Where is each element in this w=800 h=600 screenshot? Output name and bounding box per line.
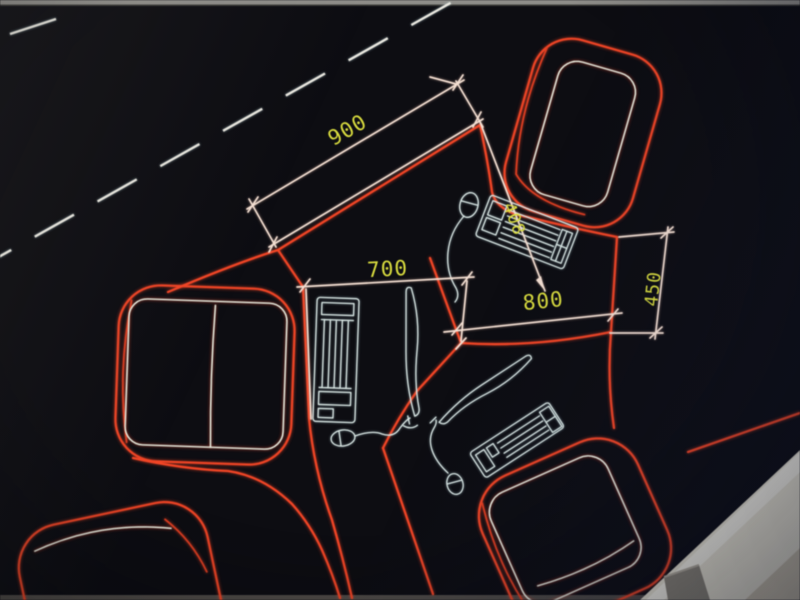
desk-cluster-outline xyxy=(133,125,800,598)
desk-edge-offscreen-right xyxy=(688,413,800,452)
mouse-left-buttons xyxy=(339,431,341,445)
mouse-left-desk xyxy=(330,428,356,447)
desk-center-right-divider xyxy=(461,332,611,344)
dimension-900-extensions xyxy=(249,77,483,247)
monitor-bottom-profile xyxy=(433,354,538,426)
dimension-800-line xyxy=(444,313,622,332)
chair-left xyxy=(114,284,296,466)
keyboard-left-block-a xyxy=(322,302,354,315)
dimension-900-line xyxy=(247,80,464,209)
desk-corner-left xyxy=(278,250,303,287)
monitor-left-desk xyxy=(401,287,423,428)
desk-left-front-edge xyxy=(303,287,352,598)
dimension-900-label: 900 xyxy=(324,109,371,150)
chair-bottom-left-shell-inner xyxy=(165,513,207,578)
mouse-right-buttons xyxy=(462,201,477,205)
chair-left-shell xyxy=(114,284,296,466)
dashed-centerline-main xyxy=(0,0,470,272)
chair-left-cushion xyxy=(125,298,288,449)
mouse-left-cable xyxy=(355,418,410,436)
keyboard-left-keys xyxy=(319,319,353,388)
desk-bottom-divider xyxy=(383,448,433,594)
dimension-900-ticks xyxy=(248,75,463,212)
keyboard-left-block-b xyxy=(318,391,350,405)
keyboard-bottom-desk xyxy=(469,402,564,478)
dimension-800-label: 800 xyxy=(522,287,565,315)
keyboard-left-desk xyxy=(313,297,359,422)
keyboard-bottom-keys xyxy=(498,416,549,457)
keyboard-bottom-block-a xyxy=(475,450,494,472)
desk-center-bottom-divider xyxy=(383,343,461,448)
mouse-right-desk xyxy=(457,191,481,220)
cad-viewport: 900 700 800 450 408 xyxy=(0,0,800,600)
dashed-centerline-upper-dash xyxy=(10,19,56,34)
keyboard-bottom-block-b xyxy=(486,444,499,458)
chair-bottom-backrest-line xyxy=(537,541,636,589)
screen-top-edge xyxy=(0,0,800,5)
keyboard-left-block-c xyxy=(318,408,333,418)
dimension-700-label: 700 xyxy=(367,256,409,282)
chair-top-right-shell-inner xyxy=(502,47,626,215)
dimension-408-label: 408 xyxy=(498,200,529,239)
chair-top-right-cushion xyxy=(525,57,640,212)
keyboard-right-block-b xyxy=(482,218,501,236)
photographed-screen: 900 700 800 450 408 xyxy=(0,0,800,600)
desk-top-edge xyxy=(278,125,480,250)
chair-left-backrest-line xyxy=(209,305,215,447)
monitor-bottom-desk xyxy=(426,354,538,430)
dashed-centerline xyxy=(0,0,470,272)
mouse-bottom-cable xyxy=(430,420,448,473)
mouse-bottom-desk xyxy=(445,472,466,496)
chair-bottom-left-cushion xyxy=(33,516,171,557)
mouse-right-cable xyxy=(448,216,464,302)
dimension-900-chain-line xyxy=(269,119,483,247)
mouse-bottom-buttons xyxy=(448,480,462,484)
dimension-700-extensions xyxy=(306,281,467,419)
screen-top-edge-shadow xyxy=(0,5,800,7)
chair-bottom-left-partial xyxy=(11,494,235,600)
dimension-450-label: 450 xyxy=(641,270,666,308)
mouse-left-body xyxy=(330,428,356,447)
dimension-900 xyxy=(247,75,483,252)
keyboard-bottom-numpad-line xyxy=(546,416,555,422)
